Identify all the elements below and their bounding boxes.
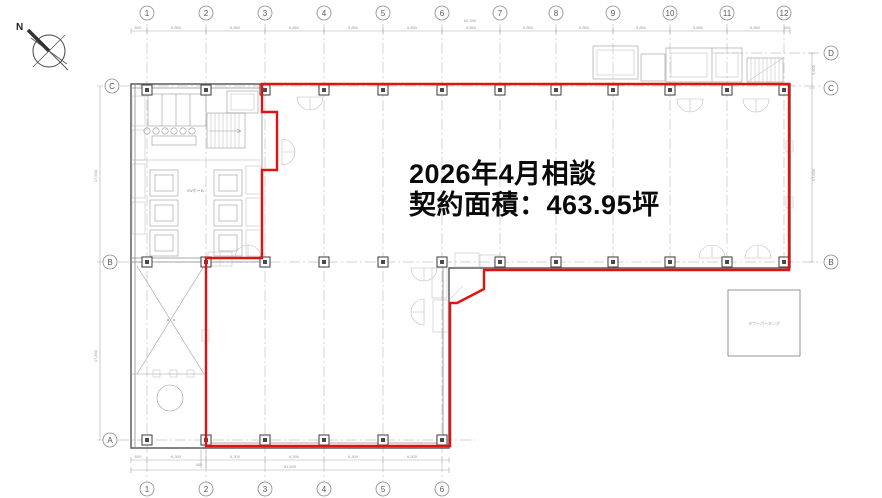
column [779,257,789,267]
grid-marker-top-8: 8 [549,6,563,20]
grid-marker-top-3: 3 [258,6,272,20]
dim-label: 17,600 [93,169,98,182]
grid-marker-label: 1 [145,485,150,494]
column [665,257,675,267]
parking-label: タワーパーキング [748,320,780,326]
column [551,257,561,267]
column [319,257,329,267]
dim-label: 5,850 [348,25,359,30]
dim-label: 800 [135,25,142,30]
column [319,435,329,445]
grid-marker-label: 9 [611,9,616,18]
door-arc [743,99,769,112]
grid-marker-label: 6 [440,485,445,494]
dim-label: 6,300 [171,454,182,459]
grid-marker-label: D [828,49,834,58]
grid-marker-label: 7 [498,9,503,18]
dim-label: 600 [135,454,142,459]
rooftop-structures [593,46,783,82]
column [437,85,447,95]
grid-marker-right-c: C [824,81,838,95]
column [142,257,152,267]
grid-marker-label: 11 [723,9,732,18]
door-arc [297,97,323,110]
grid-marker-top-1: 1 [140,6,154,20]
column [142,435,152,445]
dim-label: 5,850 [636,25,647,30]
grid-markers-left: C B A [103,79,119,447]
column [779,85,789,95]
dim-label: 6,300 [289,454,300,459]
grid-marker-label: 5 [381,485,386,494]
parking-box: タワーパーキング [728,290,800,356]
dim-label: 5,850 [466,25,477,30]
grid-marker-label: 6 [440,9,445,18]
core-area: EVホール [132,91,261,266]
grid-marker-label: 4 [322,485,327,494]
compass-north-icon: N [16,22,68,70]
grid-marker-label: C [109,82,115,91]
grid-marker-top-7: 7 [493,6,507,20]
grid-marker-label: 3 [263,485,268,494]
ev-hall-label: EVホール [187,188,204,193]
column [722,257,732,267]
dim-label: 6,300 [230,454,241,459]
grid-marker-label: 8 [554,9,559,18]
grid-marker-top-10: 10 [663,6,677,20]
dim-label: 3,600 [811,64,816,75]
door-arc [699,245,725,258]
dim-label: 600 [784,25,791,30]
grid-marker-top-12: 12 [777,6,791,20]
grid-marker-bottom-2: 2 [199,482,213,496]
column [437,435,447,445]
dim-label: 17,800 [93,349,98,362]
annotation: 2026年4月相談 契約面積：463.95坪 [409,158,660,220]
floor-plan-screenshot: 5,850 5,850 5,850 5,850 5,850 5,850 5,85… [0,0,882,498]
column [378,257,388,267]
dim-label: 400 [196,462,203,467]
dim-label: 5,850 [523,25,534,30]
grid-marker-left-b: B [103,255,117,269]
door-arc [411,268,437,281]
grid-marker-label: 5 [381,9,386,18]
column [608,85,618,95]
dim-label: 6,300 [348,454,359,459]
grid-marker-right-d: D [824,46,838,60]
grid-marker-right-b: B [824,255,838,269]
annotation-line1: 2026年4月相談 [409,158,597,189]
column [378,85,388,95]
dim-label: 5,850 [230,25,241,30]
grid-markers-bottom: 1 2 3 4 5 6 [140,482,449,496]
grid-marker-label: 2 [204,485,209,494]
annotation-line2: 契約面積：463.95坪 [409,189,660,220]
column [608,257,618,267]
column [495,85,505,95]
north-label: N [16,22,23,33]
grid-marker-label: 3 [263,9,268,18]
grid-marker-bottom-6: 6 [435,482,449,496]
dim-label: 17,600 [811,168,816,181]
column [319,85,329,95]
door-arc [411,299,424,325]
grid-marker-label: C [828,84,834,93]
grid-marker-top-4: 4 [317,6,331,20]
column [665,85,675,95]
grid-marker-bottom-3: 3 [258,482,272,496]
column [378,435,388,445]
grid-marker-left-c: C [105,79,119,93]
column [495,257,505,267]
dim-total-top: 60,300 [464,18,477,23]
dim-label: 5,850 [579,25,590,30]
column [551,85,561,95]
door-arc [745,245,771,258]
dim-label: 5,850 [171,25,182,30]
grid-marker-label: B [107,258,112,267]
grid-marker-bottom-1: 1 [140,482,154,496]
grid-marker-top-6: 6 [435,6,449,20]
dim-label: 6,300 [407,454,418,459]
floor-plan-drawing: 5,850 5,850 5,850 5,850 5,850 5,850 5,85… [0,0,882,498]
grid-marker-label: B [828,258,833,267]
grid-marker-left-a: A [103,433,117,447]
grid-marker-top-5: 5 [376,6,390,20]
grid-marker-label: 10 [666,9,675,18]
grid-marker-top-9: 9 [606,6,620,20]
grid-marker-label: A [107,436,113,445]
column [722,85,732,95]
column [142,85,152,95]
grid-marker-label: 2 [204,9,209,18]
column [201,85,211,95]
door-arc [282,139,295,165]
grid-marker-label: 4 [322,9,327,18]
grid-markers-right: D C B [824,46,838,269]
column [260,435,270,445]
lower-left-bay [131,266,206,411]
grid-marker-bottom-4: 4 [317,482,331,496]
grid-marker-top-11: 11 [720,6,734,20]
dim-label: 5,850 [693,25,704,30]
door-arc [677,99,703,112]
column [437,257,447,267]
grid-marker-bottom-5: 5 [376,482,390,496]
grid-marker-label: 1 [145,9,150,18]
dim-total-bottom: 31,500 [284,464,297,469]
grid-marker-top-2: 2 [199,6,213,20]
grid-marker-label: 12 [780,9,789,18]
dim-label: 5,850 [750,25,761,30]
dim-label: 5,850 [407,25,418,30]
dim-label: 5,850 [289,25,300,30]
